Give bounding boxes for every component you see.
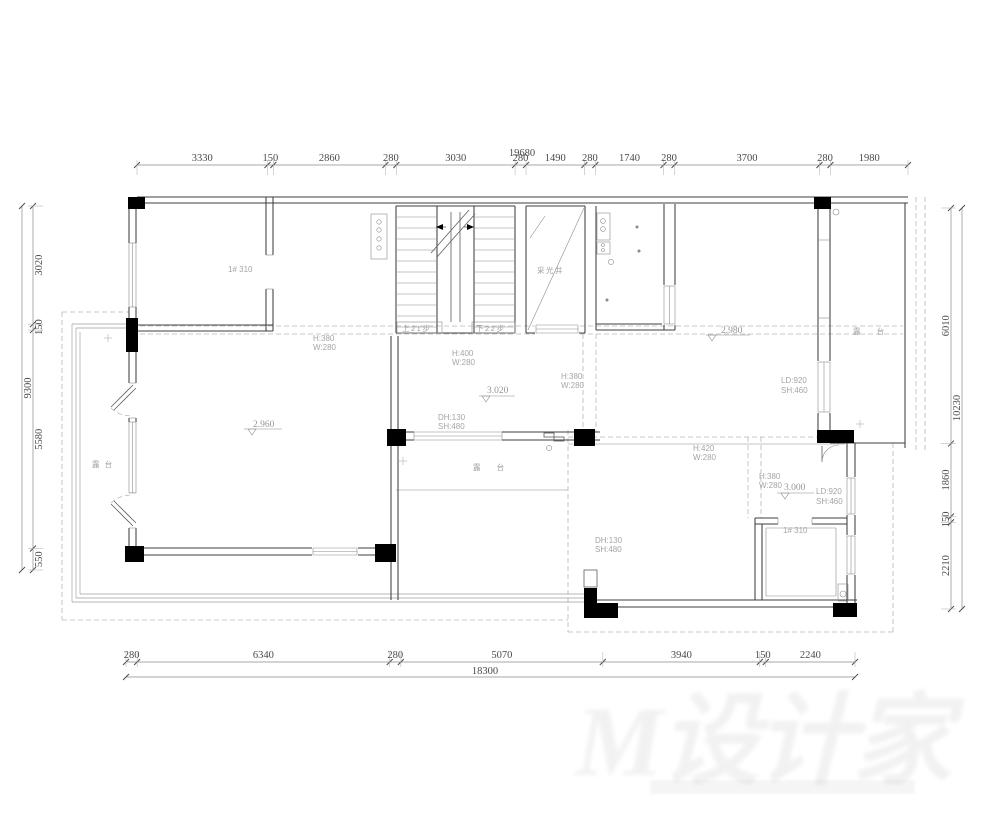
- terrace-center-label: 露 台: [473, 462, 511, 472]
- floor-plan-page: M设计家: [0, 0, 1000, 833]
- opening-room-a: [263, 255, 276, 289]
- sill-lr-1: DH:130: [595, 536, 623, 545]
- dim-chain-bottom: 280634028050703940150224018300: [123, 650, 858, 680]
- window-bottom-left-room: [312, 546, 358, 557]
- ceiling-dot: [636, 226, 639, 229]
- stair-treads-right: [475, 217, 514, 327]
- floor-plan-canvas: M设计家: [0, 0, 1000, 833]
- dim-label: 5580: [34, 429, 45, 450]
- windows: [127, 243, 857, 575]
- small-circle: [833, 209, 839, 215]
- dim-label: 1980: [859, 153, 880, 164]
- window-light-well: [535, 324, 579, 335]
- dim-label: 550: [34, 551, 45, 567]
- column: [125, 546, 144, 562]
- sill-center-2: SH:480: [438, 422, 465, 431]
- light-well-label: 采光井: [537, 265, 564, 275]
- column: [126, 318, 138, 352]
- svg-text:3.020: 3.020: [487, 386, 509, 396]
- dim-label: 280: [817, 153, 833, 164]
- column: [387, 429, 406, 446]
- shaft-fixture: [371, 214, 387, 259]
- door-small-room: [778, 516, 812, 526]
- svg-text:3.000: 3.000: [784, 483, 806, 493]
- small-room-tag: 1# 310: [783, 526, 808, 535]
- beam-lr2-h: H:380: [759, 472, 781, 481]
- dim-label: 3330: [192, 153, 213, 164]
- stairwell: [397, 210, 515, 333]
- level-marker-center: 3.020: [479, 386, 515, 402]
- stair-treads-left: [397, 217, 436, 327]
- window-terrace-wall: [816, 361, 832, 413]
- walls: [126, 197, 908, 607]
- terrace-left-label: 露 台: [92, 459, 114, 469]
- watermark: M设计家: [573, 686, 966, 797]
- column: [375, 544, 396, 562]
- column: [814, 197, 831, 209]
- svg-text:2.980: 2.980: [721, 326, 743, 336]
- dim-label: 280: [582, 153, 598, 164]
- dim-label: 5070: [491, 650, 512, 661]
- dim-label: 3030: [445, 153, 466, 164]
- dim-label: 6010: [941, 315, 952, 336]
- level-marker-terrace-tr: 2.980: [706, 326, 750, 341]
- window-room-b: [662, 285, 677, 325]
- dim-label: 150: [755, 650, 771, 661]
- sill-lr-2: SH:480: [595, 545, 622, 554]
- dim-label: 1740: [619, 153, 640, 164]
- dim-label: 2240: [800, 650, 821, 661]
- column: [817, 430, 854, 443]
- beam-lr2-w: W:280: [759, 481, 783, 490]
- annotations: 1# 310 上21步 下22步 H:400 W:280 采光井 H:380 W…: [92, 265, 891, 554]
- dim-label: 280: [383, 153, 399, 164]
- dim-label: 19680: [509, 148, 535, 159]
- door-left-upper: [111, 383, 138, 418]
- dim-label: 1860: [941, 470, 952, 491]
- window-lr-tag-1: LD:920: [816, 487, 842, 496]
- stove-fixture: [597, 213, 610, 254]
- beam-a-h: H:380: [313, 334, 335, 343]
- beam-a-w: W:280: [313, 343, 337, 352]
- stair-up-label: 上21步: [402, 324, 431, 333]
- beam-lr1-w: W:280: [693, 453, 717, 462]
- window-tr-tag-1: LD:920: [781, 376, 807, 385]
- beam-mid-h: H:380: [561, 372, 583, 381]
- dim-label: 3940: [671, 650, 692, 661]
- window-center-wall: [414, 431, 502, 441]
- dim-label: 10230: [952, 395, 963, 421]
- doors: [111, 255, 839, 528]
- beam-stair-w: W:280: [452, 358, 476, 367]
- dim-label: 2860: [319, 153, 340, 164]
- dim-label: 150: [263, 153, 279, 164]
- room-a-tag: 1# 310: [228, 265, 253, 274]
- window-lower-right-2: [845, 535, 857, 575]
- beam-lr1-h: H:420: [693, 444, 715, 453]
- column: [833, 603, 857, 617]
- column-l-shaped: [584, 588, 618, 618]
- dim-label: 1490: [545, 153, 566, 164]
- stair-direction-arrow-right: [467, 224, 474, 230]
- dim-label: 280: [124, 650, 140, 661]
- dim-chain-top: 3330150286028030302801490280174028037002…: [134, 148, 911, 175]
- dim-chain-right: 60101860150221010230: [941, 205, 965, 612]
- level-marker-room-lr: 3.000: [777, 483, 814, 499]
- dim-label: 9300: [23, 378, 34, 399]
- dim-chain-left: 302015055805509300: [19, 203, 45, 573]
- terrace-right-label: 露 台: [853, 326, 891, 336]
- small-circle: [608, 259, 613, 264]
- dim-label: 3020: [34, 255, 45, 276]
- dim-label: 150: [941, 512, 952, 528]
- column: [128, 197, 145, 209]
- dim-label: 280: [387, 650, 403, 661]
- window-lower-right-1: [845, 477, 857, 515]
- watermark-subline: [650, 780, 915, 794]
- dashed-lines: [62, 197, 925, 632]
- dim-label: 6340: [253, 650, 274, 661]
- ceiling-dot: [606, 299, 609, 302]
- window-tr-tag-2: SH:460: [781, 386, 808, 395]
- stair-down-label: 下22步: [476, 324, 505, 333]
- sill-center-1: DH:130: [438, 413, 466, 422]
- dim-label: 3700: [736, 153, 757, 164]
- beam-mid-w: W:280: [561, 381, 585, 390]
- level-marker-living: 2.960: [244, 420, 282, 435]
- beam-stair-h: H:400: [452, 349, 474, 358]
- door-lower-right: [822, 445, 839, 462]
- small-circle: [546, 445, 551, 450]
- column: [574, 429, 595, 446]
- svg-text:2.960: 2.960: [253, 420, 275, 430]
- dim-label: 2210: [941, 555, 952, 576]
- dim-label: 280: [661, 153, 677, 164]
- duct-box: [584, 570, 597, 587]
- ceiling-dot: [638, 250, 641, 253]
- door-left-lower: [111, 493, 138, 528]
- fixtures: [104, 209, 864, 601]
- window-left-middle: [127, 422, 138, 493]
- window-lr-tag-2: SH:460: [816, 497, 843, 506]
- dim-label: 150: [34, 319, 45, 335]
- dim-label: 18300: [472, 666, 498, 677]
- window-left-upper: [127, 243, 138, 307]
